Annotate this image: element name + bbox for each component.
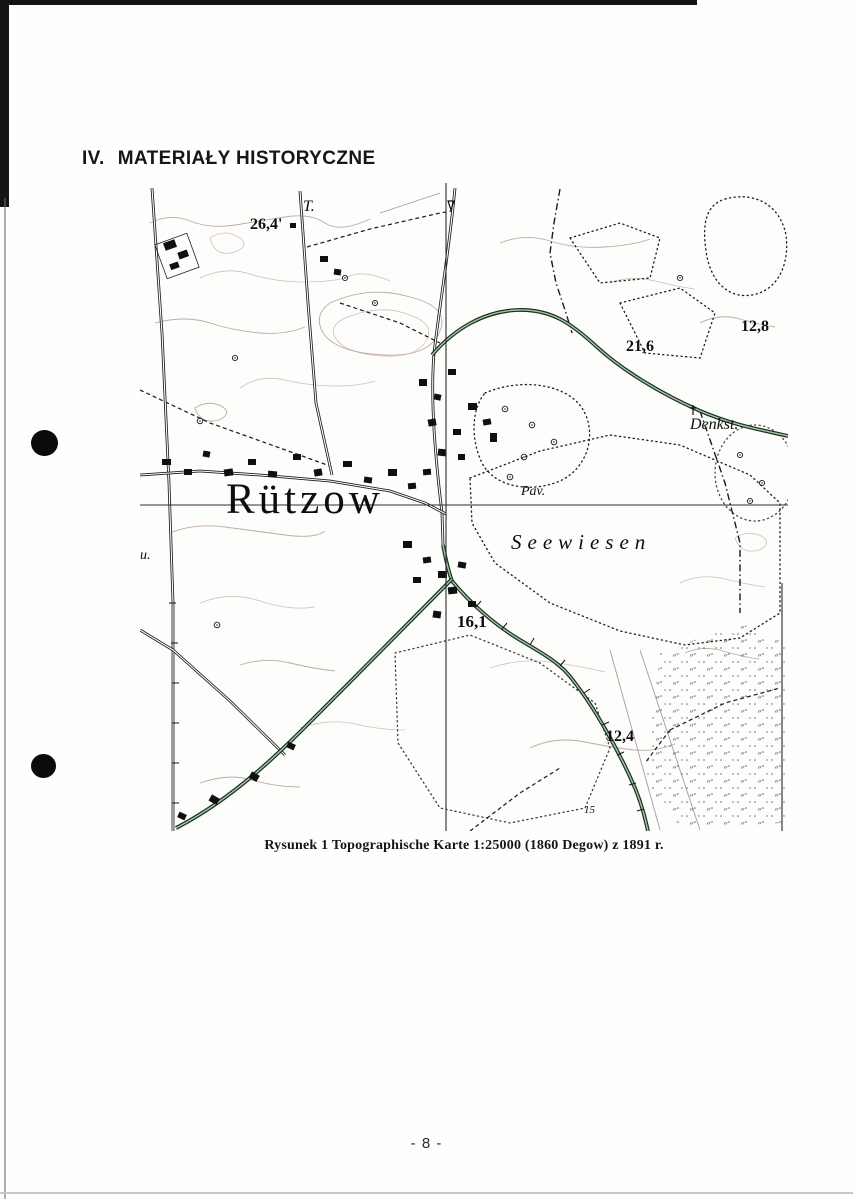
historical-map-image: Rützow Seewiesen Denkst. Pav. T. u. 26,4… (140, 183, 788, 831)
map-elevation-21-6: 21,6 (626, 338, 654, 355)
map-label-denkst: Denkst. (689, 416, 738, 433)
pond (705, 197, 787, 296)
tree-symbols (197, 275, 764, 627)
map-elevation-12-4: 12,4 (606, 728, 634, 745)
map-label-ruetzow: Rützow (226, 476, 384, 523)
map-elevation-12-8: 12,8 (741, 318, 769, 335)
map-elevation-15: 15 (584, 804, 596, 816)
scan-edge-top (0, 0, 697, 5)
scan-edge-left-line (4, 198, 6, 1199)
scan-edge-left (0, 0, 9, 207)
map-elevation-26-4: 26,4' (250, 216, 282, 233)
section-heading: IV. MATERIAŁY HISTORYCZNE (82, 148, 376, 170)
map-label-pav: Pav. (520, 484, 545, 499)
section-title: MATERIAŁY HISTORYCZNE (118, 148, 376, 170)
map-label-seewiesen: Seewiesen (511, 530, 651, 554)
section-number: IV. (82, 148, 105, 170)
map-label-t: T. (303, 198, 315, 215)
figure-topographic-map: Rützow Seewiesen Denkst. Pav. T. u. 26,4… (140, 183, 788, 854)
page-number: - 8 - (0, 1135, 853, 1152)
document-page: IV. MATERIAŁY HISTORYCZNE (0, 0, 853, 1199)
map-label-u-fragment: u. (140, 548, 151, 563)
scan-edge-bottom (0, 1192, 853, 1194)
map-elevation-16-1: 16,1 (457, 612, 487, 631)
meadow-texture-seewiesen (395, 223, 788, 828)
punch-hole-bottom (31, 754, 56, 778)
punch-hole-top (31, 430, 58, 456)
figure-caption: Rysunek 1 Topographische Karte 1:25000 (… (140, 838, 788, 854)
